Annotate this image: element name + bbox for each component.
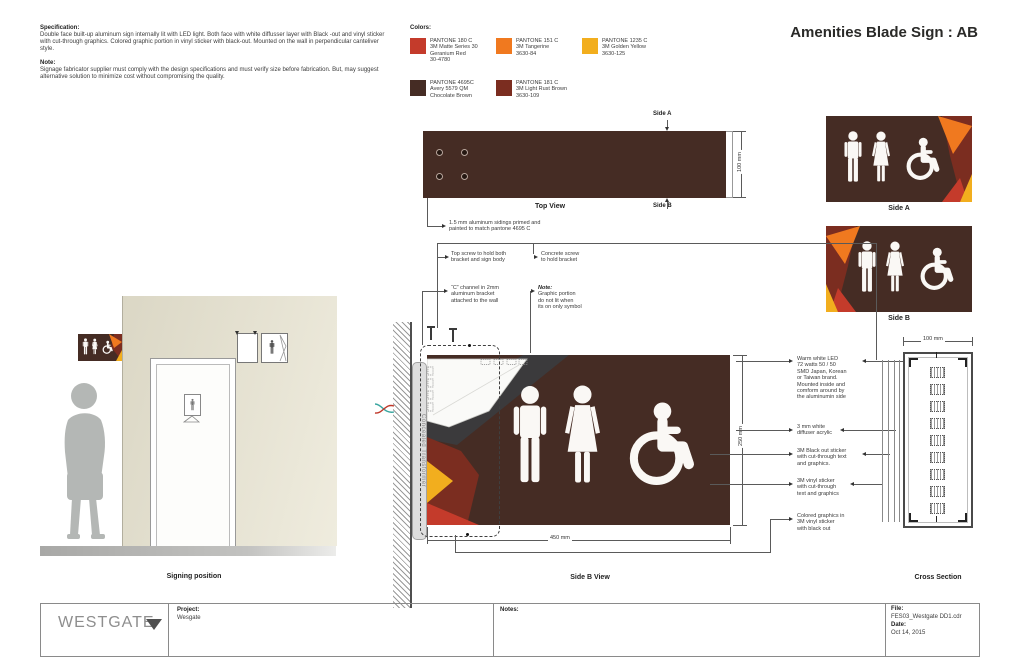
- westgate-logo: WESTGATE: [58, 614, 155, 632]
- footer-divider: [40, 603, 41, 656]
- cross-section-caption: Cross Section: [900, 574, 976, 581]
- arrow-right-icon: [789, 517, 793, 521]
- led-module: [930, 401, 945, 412]
- color-swatch-label: PANTONE 180 C 3M Matte Series 30 Geraniu…: [430, 38, 478, 64]
- callout-c-channel: “C” channel in 2mm aluminum bracket atta…: [451, 285, 499, 304]
- note-body: Signage fabricator supplier must comply …: [40, 67, 392, 81]
- leader-line: [530, 291, 531, 353]
- note-text: Graphic portion do not lit when its on o…: [538, 291, 582, 310]
- callout-concrete-screw: Concrete screw to hold bracket: [541, 251, 579, 264]
- dimension-tick: [730, 527, 731, 544]
- screw-icon: [461, 149, 468, 156]
- layer-line: [894, 360, 895, 522]
- dimension-line: [427, 540, 730, 541]
- date-value: Oct 14, 2015: [891, 630, 925, 637]
- layer-line: [899, 360, 900, 522]
- top-view-side-b-label: Side B: [653, 203, 672, 210]
- led-module: [930, 503, 945, 514]
- leader-line: [736, 361, 789, 362]
- elevation-caption: Signing position: [134, 573, 254, 580]
- file-value: FES03_Westgate DD1.cdr: [891, 614, 962, 621]
- screw-mark: [936, 352, 937, 358]
- leader-line: [427, 198, 428, 226]
- leader-line: [437, 243, 438, 252]
- layer-line: [882, 360, 883, 522]
- top-view-sign-body: [423, 131, 726, 198]
- leader-line: [455, 552, 770, 553]
- date-label: Date:: [891, 622, 906, 629]
- specification-block: Specification: Double face built-up alum…: [40, 25, 392, 82]
- leader-line: [770, 519, 771, 553]
- color-swatch-geranium-red: [410, 38, 426, 54]
- mini-diagram-front-box: [261, 333, 288, 363]
- mini-diagram-side-box: [237, 333, 258, 363]
- screw-icon: [461, 173, 468, 180]
- leader-line: [533, 243, 534, 254]
- callout-led: Warm white LED 72 watts 50 / 50 SMD Japa…: [797, 356, 861, 401]
- side-b-view-caption: Side B View: [530, 574, 650, 581]
- page-title: Amenities Blade Sign : AB: [700, 24, 978, 41]
- dimension-tick: [427, 527, 428, 544]
- height-dim-label: 250 mm: [738, 424, 744, 448]
- dimension-tick: [733, 131, 746, 132]
- arrow-right-icon: [445, 255, 449, 259]
- color-swatch-tangerine: [496, 38, 512, 54]
- door-sign-mark: [183, 415, 201, 423]
- note-label: Note:: [538, 285, 552, 291]
- led-module: [930, 452, 945, 463]
- screw-icon: [436, 149, 443, 156]
- color-swatch-light-rust-brown: [496, 80, 512, 96]
- led-module: [930, 384, 945, 395]
- arrow-right-icon: [789, 428, 793, 432]
- project-label: Project:: [177, 607, 199, 614]
- arrow-right-icon: [534, 255, 538, 259]
- elevation-door: [156, 364, 230, 547]
- leader-node: [466, 533, 469, 536]
- top-view-diffuser-edge: [726, 131, 733, 198]
- footer-border: [40, 656, 980, 657]
- side-a-preview: [826, 116, 972, 202]
- colors-heading: Colors:: [410, 25, 680, 32]
- led-module: [930, 469, 945, 480]
- led-module: [930, 435, 945, 446]
- drawing-sheet: Specification: Double face built-up alum…: [0, 0, 1020, 660]
- spec-heading: Specification:: [40, 25, 392, 32]
- logo-triangle-icon: [146, 619, 162, 630]
- top-view-side-a-label: Side A: [653, 111, 671, 118]
- callout-colored-graphics: Colored graphics in 3M vinyl sticker wit…: [797, 513, 861, 532]
- callout-note: Note:Graphic portion do not lit when its…: [538, 285, 582, 311]
- leader-line: [422, 291, 444, 292]
- spec-body: Double face built-up aluminum sign inter…: [40, 32, 392, 53]
- leader-line: [876, 243, 877, 360]
- footer-divider: [885, 603, 886, 656]
- color-swatch-label: PANTONE 1235 C 3M Golden Yellow 3630-125: [602, 38, 647, 57]
- screw-icon: [436, 173, 443, 180]
- corner-bracket-icon: [909, 358, 918, 367]
- footer-divider: [493, 603, 494, 656]
- person-silhouette: [48, 382, 124, 547]
- leader-node: [468, 344, 471, 347]
- arrow-up-icon: [665, 198, 669, 202]
- concrete-screw-icon: [430, 327, 432, 340]
- led-module: [930, 418, 945, 429]
- corner-bracket-icon: [958, 513, 967, 522]
- project-value: Wesgate: [177, 615, 201, 622]
- top-view-dim-label: 100 mm: [737, 150, 743, 174]
- leader-line: [422, 291, 423, 345]
- notes-label: Notes:: [500, 607, 519, 614]
- leader-line: [437, 243, 876, 244]
- bracket-dashed-outline: [420, 345, 500, 537]
- leader-line: [854, 484, 882, 485]
- arrow-right-icon: [444, 289, 448, 293]
- corner-bracket-icon: [909, 513, 918, 522]
- leader-line: [710, 484, 789, 485]
- leader-line: [427, 226, 442, 227]
- dimension-tick: [972, 337, 973, 346]
- color-swatch-label: PANTONE 151 C 3M Tangerine 3630-84: [516, 38, 558, 57]
- color-swatch-label: PANTONE 4695C Avery 5579 QM Chocolate Br…: [430, 80, 474, 99]
- power-wires: [374, 398, 396, 420]
- leader-line: [736, 430, 789, 431]
- corner-bracket-icon: [958, 358, 967, 367]
- leader-line: [455, 535, 456, 553]
- arrow-right-icon: [531, 289, 535, 293]
- leader-line: [866, 454, 890, 455]
- layer-line: [888, 360, 889, 522]
- footer-border: [40, 603, 980, 604]
- floor-strip: [40, 546, 336, 556]
- led-module: [930, 486, 945, 497]
- arrow-right-icon: [789, 452, 793, 456]
- color-swatch-golden-yellow: [582, 38, 598, 54]
- arrow-down-icon: [253, 331, 257, 335]
- arrow-right-icon: [442, 224, 446, 228]
- leader-line: [710, 454, 789, 455]
- callout-top-screw: Top screw to hold both bracket and sign …: [451, 251, 506, 264]
- callout-blackout-sticker: 3M Black out sticker with cut-through te…: [797, 448, 863, 467]
- footer-divider: [979, 603, 980, 656]
- side-a-preview-caption: Side A: [826, 205, 972, 212]
- leader-line: [437, 257, 445, 258]
- file-label: File:: [891, 606, 903, 613]
- leader-line: [437, 252, 438, 328]
- leader-line: [770, 519, 789, 520]
- dimension-tick: [733, 197, 746, 198]
- top-view-caption: Top View: [520, 203, 580, 210]
- top-screw-icon: [452, 329, 454, 342]
- wall-hatching: [393, 322, 412, 608]
- led-module: [930, 367, 945, 378]
- elevation-blade-sign: [78, 334, 122, 361]
- color-swatch-chocolate-brown: [410, 80, 426, 96]
- colors-panel: Colors: PANTONE 180 C 3M Matte Series 30…: [410, 25, 680, 105]
- leader-line: [667, 201, 668, 209]
- width-dim-label: 450 mm: [548, 535, 572, 541]
- dimension-tick: [733, 525, 747, 526]
- top-view-callout: 1.5 mm aluminum sidings primed and paint…: [449, 220, 540, 233]
- arrow-down-icon: [665, 127, 669, 131]
- dimension-tick: [903, 337, 904, 346]
- side-b-preview: [826, 226, 972, 312]
- cross-section-dim-label: 100 mm: [921, 336, 945, 342]
- note-heading: Note:: [40, 60, 392, 67]
- arrow-right-icon: [789, 482, 793, 486]
- color-swatch-label: PANTONE 181 C 3M Light Rust Brown 3630-1…: [516, 80, 567, 99]
- arrow-down-icon: [235, 331, 239, 335]
- dimension-tick: [733, 355, 747, 356]
- footer-divider: [168, 603, 169, 656]
- side-b-preview-caption: Side B: [826, 315, 972, 322]
- arrow-right-icon: [789, 359, 793, 363]
- screw-mark: [936, 516, 937, 522]
- door-sign: [184, 394, 201, 416]
